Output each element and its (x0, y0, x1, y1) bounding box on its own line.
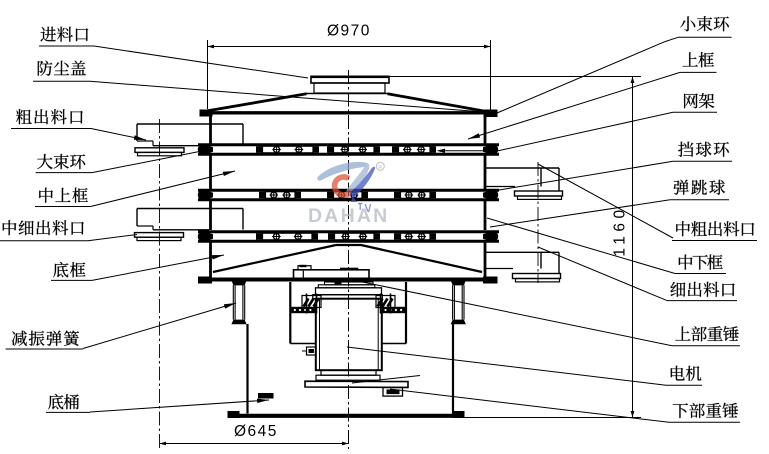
svg-text:R: R (378, 165, 382, 171)
svg-text:DAHAN: DAHAN (308, 205, 389, 227)
svg-text:Ø645: Ø645 (234, 423, 278, 440)
svg-text:Ø970: Ø970 (327, 23, 371, 40)
svg-text:1160: 1160 (612, 205, 629, 256)
